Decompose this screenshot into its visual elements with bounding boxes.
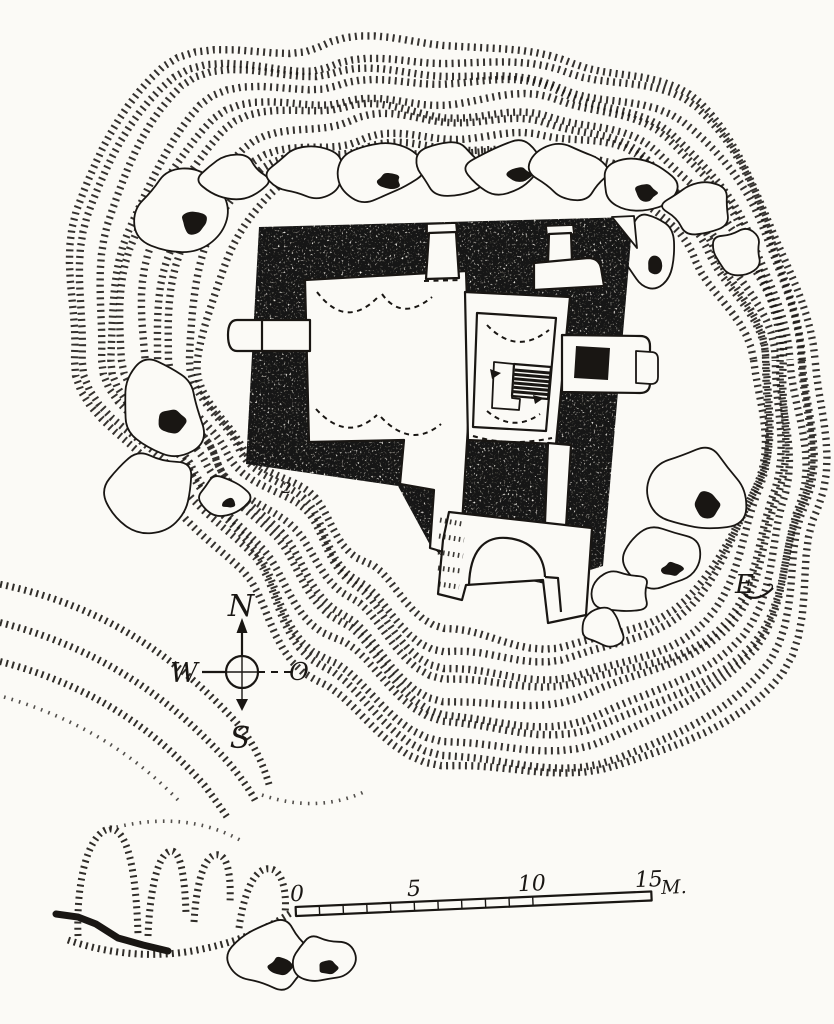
boulder-path bbox=[125, 359, 204, 456]
monument-plan bbox=[228, 216, 658, 623]
site-plan-drawing: N W O S 0 5 10 15 M. 2 E bbox=[0, 0, 834, 1024]
boulder-path bbox=[529, 144, 608, 200]
hach-path bbox=[0, 621, 256, 802]
boulder-path bbox=[583, 608, 624, 647]
room-path bbox=[438, 512, 592, 623]
dot-path bbox=[262, 790, 368, 804]
scale-bar-body bbox=[296, 891, 652, 916]
compass-label-north: N bbox=[227, 589, 256, 624]
monogram-letter: E bbox=[734, 570, 754, 600]
room-path bbox=[228, 320, 310, 351]
room-path bbox=[545, 443, 571, 527]
white-path bbox=[636, 351, 658, 384]
boulder-path bbox=[713, 229, 760, 275]
dot-path bbox=[4, 697, 178, 800]
scale-label-10: 10 bbox=[517, 871, 546, 897]
blk-path bbox=[56, 914, 168, 951]
hach-path bbox=[148, 851, 186, 936]
hach-path bbox=[194, 855, 230, 922]
southwest-terrace-hachures bbox=[0, 583, 368, 954]
darkplain-path bbox=[574, 346, 610, 380]
compass-label-south: S bbox=[230, 721, 251, 756]
compass-south-pointer-icon bbox=[236, 699, 248, 711]
boulder-path bbox=[338, 143, 424, 202]
room-path bbox=[426, 232, 459, 279]
site-label: 2 bbox=[281, 479, 292, 497]
scale-unit-label: M. bbox=[660, 876, 687, 899]
site-plan-page: N W O S 0 5 10 15 M. 2 E bbox=[0, 0, 834, 1024]
scale-bar: 0 5 10 15 M. bbox=[290, 865, 688, 916]
compass-label-west: W bbox=[170, 658, 200, 689]
boulder-path bbox=[293, 936, 356, 981]
room-path bbox=[548, 233, 572, 263]
room-path bbox=[305, 271, 471, 557]
boulder-path bbox=[591, 571, 647, 611]
dot-path bbox=[109, 821, 240, 840]
boulder-path bbox=[104, 453, 191, 533]
room-path bbox=[534, 258, 604, 290]
scale-label-5: 5 bbox=[406, 877, 421, 903]
compass-label-east: O bbox=[289, 658, 309, 686]
scale-bar-ticks bbox=[319, 897, 533, 915]
boulder-path bbox=[647, 448, 746, 529]
scale-label-15: 15 bbox=[634, 867, 663, 893]
compass-rose: N W O S bbox=[170, 589, 309, 756]
scale-label-0: 0 bbox=[290, 882, 305, 908]
artist-monogram: E bbox=[734, 570, 773, 600]
